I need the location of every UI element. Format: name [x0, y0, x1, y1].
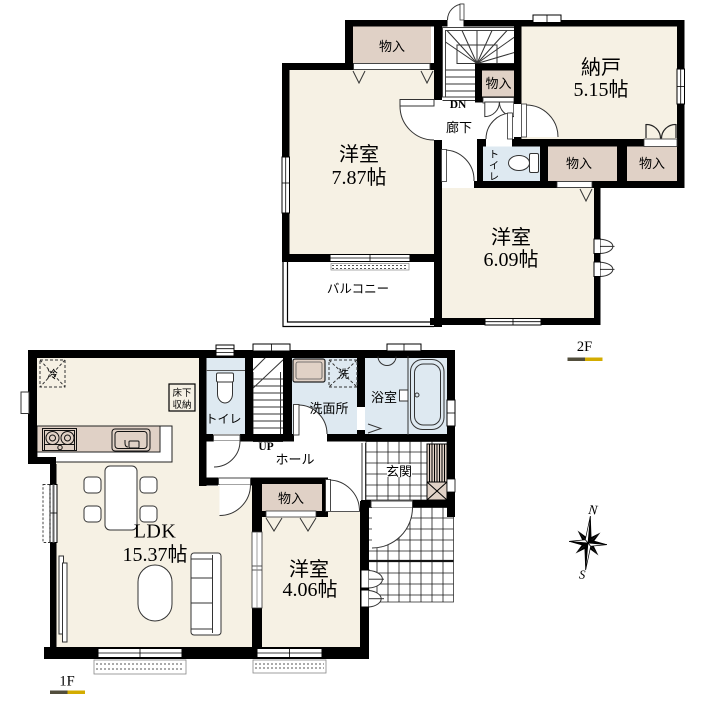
svg-text:収納: 収納 [172, 399, 191, 411]
svg-text:2F: 2F [577, 339, 592, 355]
svg-text:物入: 物入 [566, 156, 592, 171]
svg-text:物入: 物入 [379, 39, 405, 54]
svg-text:ホール: ホール [275, 452, 314, 467]
svg-text:イ: イ [489, 161, 499, 172]
svg-text:洋室: 洋室 [289, 558, 329, 581]
svg-text:物入: 物入 [639, 156, 665, 171]
svg-text:UP: UP [258, 441, 273, 453]
svg-text:DN: DN [450, 99, 467, 111]
svg-text:物入: 物入 [278, 491, 304, 506]
svg-text:洋室: 洋室 [339, 143, 379, 166]
svg-text:床下: 床下 [172, 387, 191, 399]
svg-text:洗: 洗 [338, 368, 349, 381]
svg-text:4.06帖: 4.06帖 [283, 578, 338, 601]
svg-text:1F: 1F [59, 674, 74, 690]
svg-text:LDK: LDK [134, 521, 177, 543]
svg-text:洋室: 洋室 [491, 226, 531, 249]
svg-text:物入: 物入 [485, 76, 511, 91]
svg-text:ト: ト [489, 150, 499, 161]
svg-text:6.09帖: 6.09帖 [484, 248, 539, 271]
svg-text:納戸: 納戸 [581, 56, 621, 79]
svg-text:15.37帖: 15.37帖 [123, 543, 188, 566]
svg-text:浴室: 浴室 [371, 390, 397, 405]
svg-text:トイレ: トイレ [205, 412, 241, 426]
svg-text:玄関: 玄関 [386, 464, 412, 479]
svg-text:洗面所: 洗面所 [309, 401, 348, 416]
svg-text:レ: レ [489, 172, 499, 183]
svg-text:冷: 冷 [47, 368, 58, 381]
svg-text:バルコニー: バルコニー [327, 282, 389, 296]
svg-text:5.15帖: 5.15帖 [574, 78, 629, 101]
svg-text:7.87帖: 7.87帖 [332, 166, 387, 189]
svg-text:廊下: 廊下 [446, 120, 472, 135]
